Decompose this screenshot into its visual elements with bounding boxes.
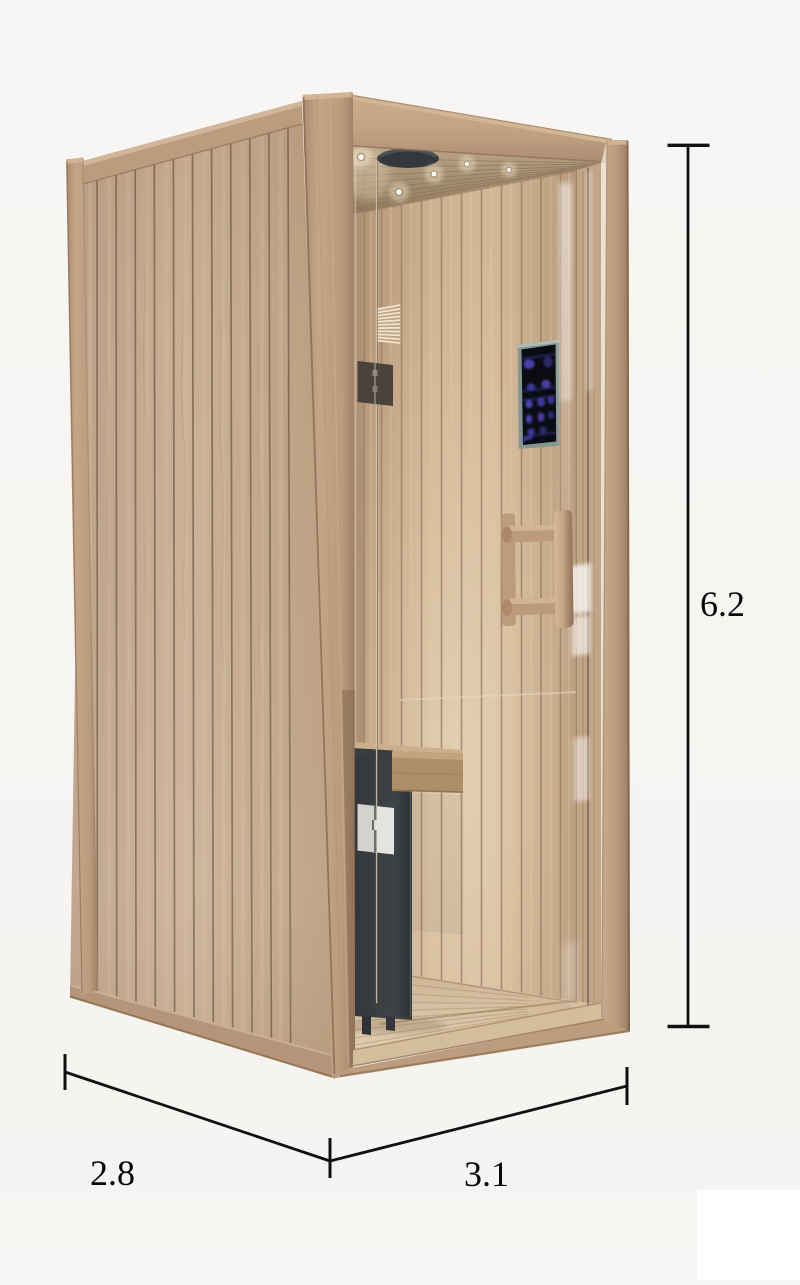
- svg-text:6.2: 6.2: [700, 584, 745, 624]
- svg-text:3.1: 3.1: [464, 1154, 509, 1194]
- svg-text:2.8: 2.8: [90, 1153, 135, 1193]
